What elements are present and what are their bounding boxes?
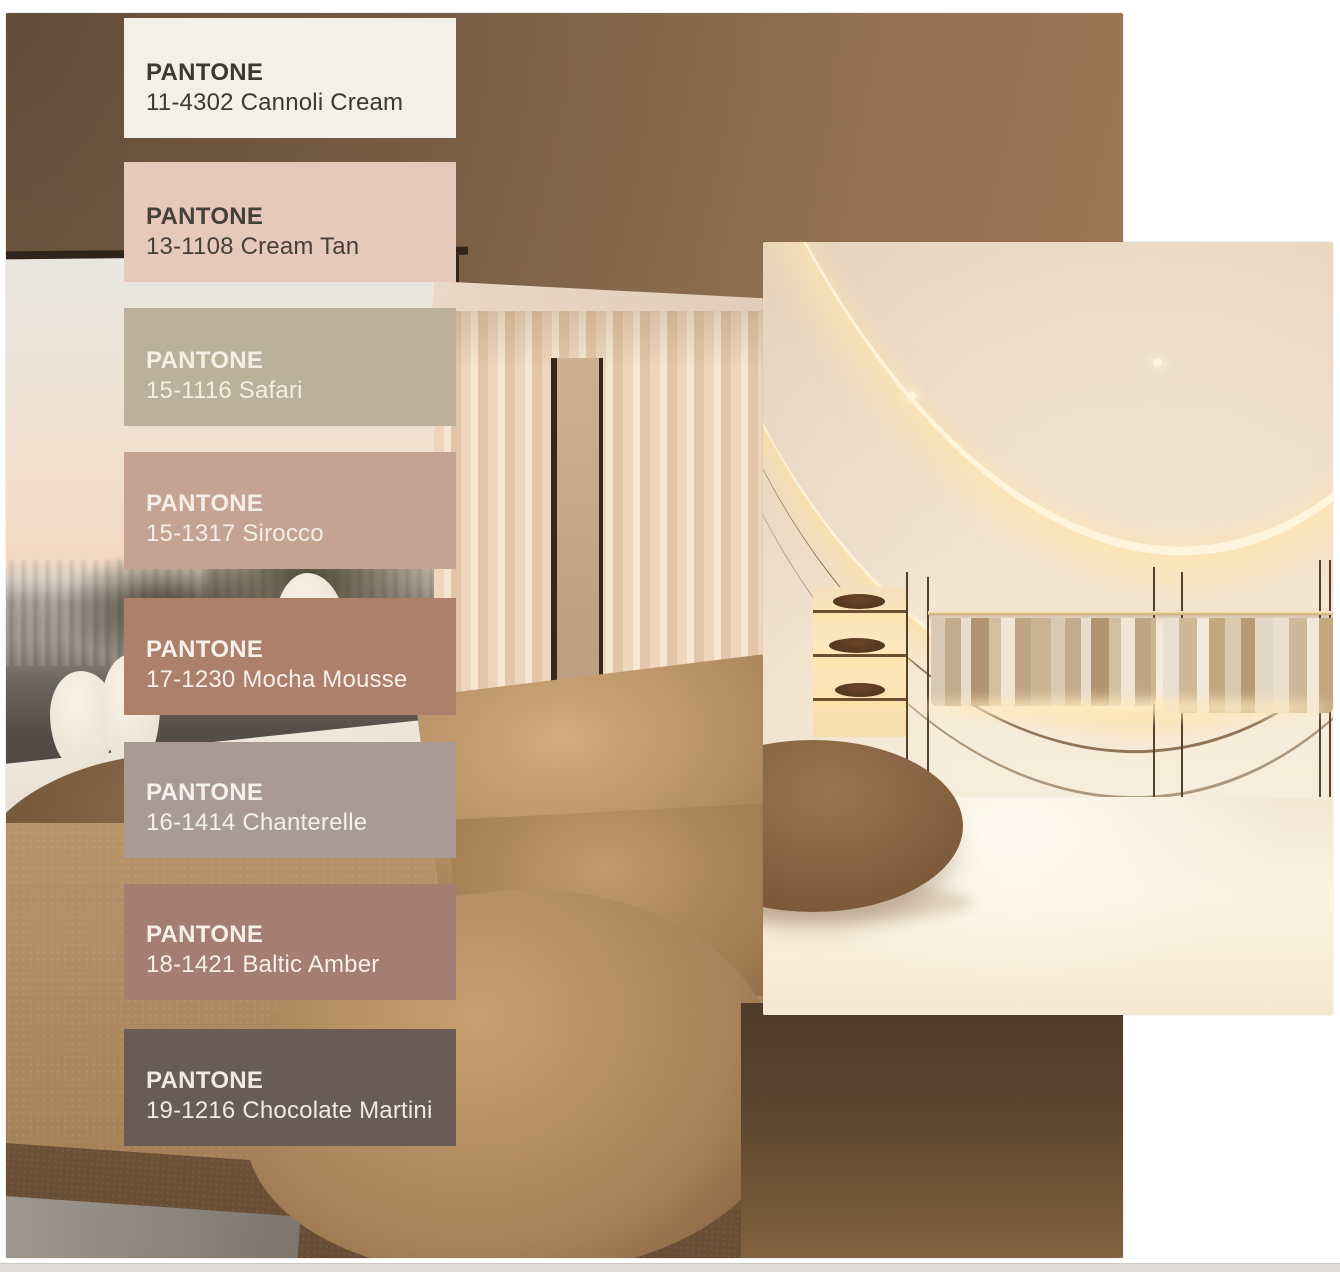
pantone-brand-label: PANTONE <box>146 778 456 808</box>
pantone-brand-label: PANTONE <box>146 58 456 88</box>
pantone-brand-label: PANTONE <box>146 346 456 376</box>
pantone-color-label: 15-1116 Safari <box>146 376 456 406</box>
pantone-swatch: PANTONE 15-1116 Safari <box>124 308 456 426</box>
pantone-color-label: 18-1421 Baltic Amber <box>146 950 456 980</box>
pantone-palette: PANTONE 11-4302 Cannoli Cream PANTONE 13… <box>0 0 1340 1272</box>
pantone-swatch: PANTONE 19-1216 Chocolate Martini <box>124 1029 456 1146</box>
pantone-brand-label: PANTONE <box>146 920 456 950</box>
pantone-swatch: PANTONE 16-1414 Chanterelle <box>124 742 456 858</box>
pantone-color-label: 16-1414 Chanterelle <box>146 808 456 838</box>
pantone-brand-label: PANTONE <box>146 489 456 519</box>
pantone-color-label: 15-1317 Sirocco <box>146 519 456 549</box>
pantone-color-label: 11-4302 Cannoli Cream <box>146 88 456 118</box>
pantone-brand-label: PANTONE <box>146 635 456 665</box>
pantone-swatch: PANTONE 15-1317 Sirocco <box>124 452 456 569</box>
pantone-color-label: 13-1108 Cream Tan <box>146 232 456 262</box>
moodboard: PANTONE 11-4302 Cannoli Cream PANTONE 13… <box>0 0 1340 1272</box>
pantone-brand-label: PANTONE <box>146 1066 456 1096</box>
bottom-scrollbar-strip <box>0 1263 1340 1272</box>
pantone-swatch: PANTONE 11-4302 Cannoli Cream <box>124 18 456 138</box>
pantone-swatch: PANTONE 13-1108 Cream Tan <box>124 162 456 282</box>
pantone-swatch: PANTONE 17-1230 Mocha Mousse <box>124 598 456 715</box>
pantone-color-label: 17-1230 Mocha Mousse <box>146 665 456 695</box>
pantone-swatch: PANTONE 18-1421 Baltic Amber <box>124 884 456 1000</box>
pantone-brand-label: PANTONE <box>146 202 456 232</box>
pantone-color-label: 19-1216 Chocolate Martini <box>146 1096 456 1126</box>
